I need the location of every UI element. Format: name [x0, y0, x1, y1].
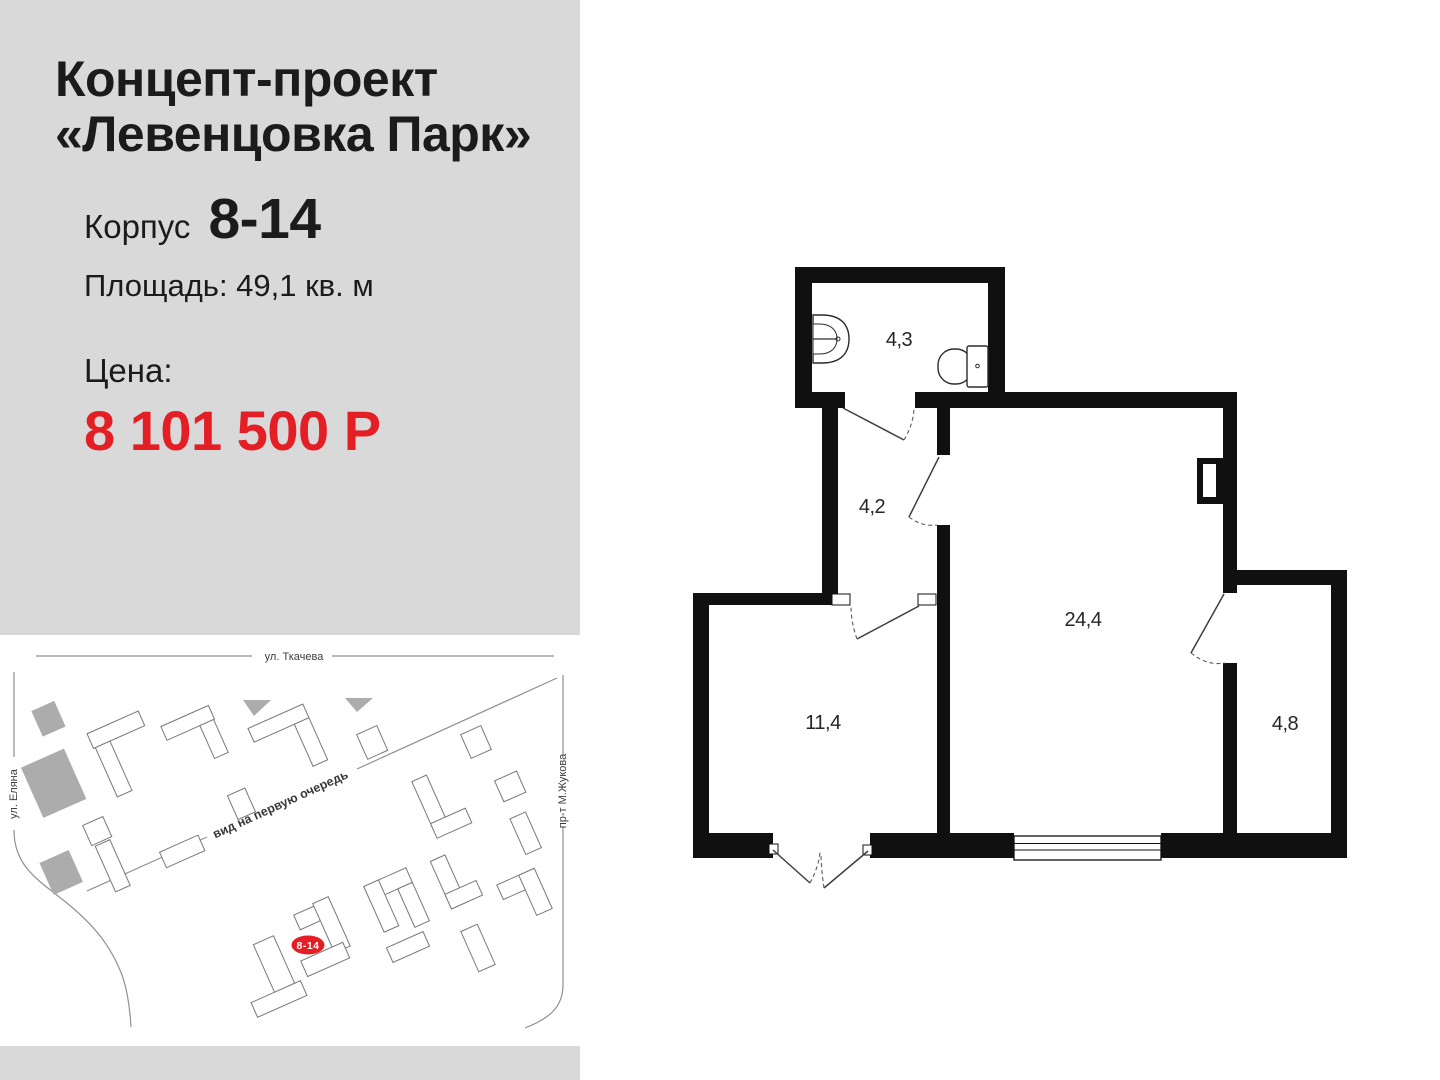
floor-plan-svg: 4,3 4,2 24,4 11,4 4,8 [660, 240, 1440, 920]
wall [1331, 570, 1347, 858]
living-room-door-leaf [909, 457, 939, 517]
wall [822, 408, 838, 605]
street-label-left: ул. Еляна [8, 768, 20, 819]
site-map: ул. Ткачева ул. Еляна пр-т М.Жукова вид … [0, 635, 580, 1046]
balcony-door-right-leaf [824, 851, 868, 888]
living-room-window [1006, 833, 1170, 860]
price-value: 8 101 500 Р [84, 398, 381, 463]
door-jambs [769, 594, 936, 855]
project-title-line2: «Левенцовка Парк» [55, 107, 531, 162]
building-badge-label: 8-14 [296, 940, 319, 952]
info-panel: Концепт-проект «Левенцовка Парк» Корпус … [0, 0, 580, 1080]
balcony-door-right-swing [821, 853, 824, 888]
wall [937, 408, 950, 455]
wall [693, 833, 773, 858]
wall [1237, 570, 1347, 585]
wall [693, 593, 832, 605]
street-label-right: пр-т М.Жукова [557, 753, 569, 828]
window-jamb [1161, 833, 1170, 858]
loggia-door-leaf [1191, 594, 1224, 653]
vent-shaft [1197, 458, 1223, 504]
balcony-door-left-swing [810, 852, 820, 883]
wall [795, 267, 812, 408]
wall [795, 267, 1005, 283]
bathroom-door-swing [904, 409, 914, 440]
bedroom-door-leaf [857, 606, 919, 639]
door-jamb [918, 594, 936, 605]
window-frame [1014, 836, 1161, 860]
room-area-label-hallway: 4,2 [859, 496, 886, 518]
room-area-label-bedroom: 11,4 [805, 712, 841, 734]
wall [795, 392, 845, 408]
bedroom-door-swing [851, 607, 857, 639]
wall [915, 392, 1237, 408]
door-jamb [832, 594, 850, 605]
bathroom-fixtures [813, 315, 988, 387]
window-jamb [1006, 833, 1014, 858]
wall [1170, 833, 1347, 858]
building-number-label: Корпус [84, 208, 190, 246]
wall [1223, 408, 1237, 593]
room-area-label-loggia: 4,8 [1272, 713, 1299, 735]
street-label-top: ул. Ткачева [265, 651, 325, 663]
bathroom-door-leaf [843, 408, 904, 440]
balcony-door-left-leaf [773, 850, 810, 883]
building-number-value: 8-14 [208, 186, 320, 252]
price-label: Цена: [84, 352, 173, 390]
site-map-svg: ул. Ткачева ул. Еляна пр-т М.Жукова вид … [0, 635, 580, 1046]
floor-plan-walls [693, 267, 1347, 858]
wall [693, 593, 709, 858]
project-title: Концепт-проект «Левенцовка Парк» [55, 52, 531, 162]
apartment-area: Площадь: 49,1 кв. м [84, 268, 374, 304]
room-area-label-living-room: 24,4 [1065, 609, 1102, 631]
building-number-row: Корпус 8-14 [84, 186, 321, 252]
living-room-door-swing [909, 517, 937, 525]
loggia-door-swing [1191, 653, 1225, 664]
room-area-label-bathroom: 4,3 [886, 329, 913, 351]
wall [1223, 663, 1237, 833]
project-title-line1: Концепт-проект [55, 52, 531, 107]
toilet-tank-icon [967, 346, 988, 387]
vent-shaft-inner [1203, 464, 1216, 497]
floor-plan: 4,3 4,2 24,4 11,4 4,8 [660, 240, 1440, 920]
wall [937, 525, 950, 833]
wall [870, 833, 1007, 858]
real-estate-slide: Концепт-проект «Левенцовка Парк» Корпус … [0, 0, 1440, 1080]
doors [773, 408, 1225, 888]
wall [988, 267, 1005, 408]
